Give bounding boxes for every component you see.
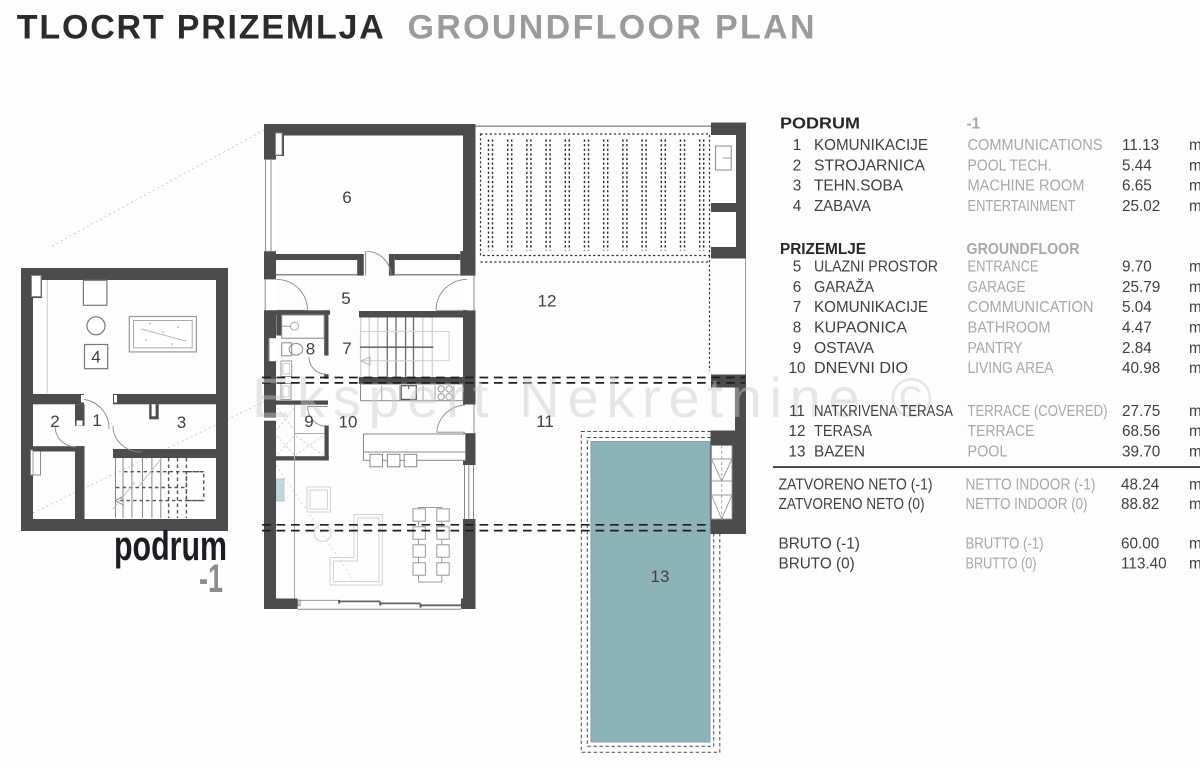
svg-text:NETTO INDOOR (0): NETTO INDOOR (0) xyxy=(966,496,1088,513)
svg-text:TERRACE: TERRACE xyxy=(968,423,1035,440)
svg-text:ZATVORENO NETO (0): ZATVORENO NETO (0) xyxy=(779,496,925,513)
svg-text:11: 11 xyxy=(536,412,554,431)
svg-text:m²: m² xyxy=(1189,555,1200,572)
svg-text:40.98: 40.98 xyxy=(1122,360,1160,377)
svg-text:12: 12 xyxy=(788,423,805,440)
svg-text:5: 5 xyxy=(793,259,802,276)
svg-text:m²: m² xyxy=(1189,536,1200,553)
svg-text:12: 12 xyxy=(538,292,557,311)
svg-text:m²: m² xyxy=(1189,423,1200,440)
svg-text:m²: m² xyxy=(1189,137,1200,154)
svg-text:13: 13 xyxy=(788,444,805,461)
svg-text:ZABAVA: ZABAVA xyxy=(814,198,872,215)
svg-text:25.79: 25.79 xyxy=(1122,279,1160,296)
svg-text:m²: m² xyxy=(1189,299,1200,316)
svg-text:KUPAONICA: KUPAONICA xyxy=(814,320,908,337)
svg-text:113.40: 113.40 xyxy=(1121,555,1167,572)
svg-text:m²: m² xyxy=(1189,198,1200,215)
svg-text:BRUTTO (0): BRUTTO (0) xyxy=(966,555,1037,572)
svg-text:m²: m² xyxy=(1189,157,1200,174)
svg-text:MACHINE ROOM: MACHINE ROOM xyxy=(968,178,1085,195)
svg-text:9: 9 xyxy=(793,340,802,357)
svg-text:m²: m² xyxy=(1189,496,1200,513)
svg-text:ZATVORENO NETO (-1): ZATVORENO NETO (-1) xyxy=(779,477,933,494)
svg-text:4: 4 xyxy=(793,198,802,215)
svg-text:TERRACE (COVERED): TERRACE (COVERED) xyxy=(968,403,1108,420)
svg-text:GROUNDFLOOR PLAN: GROUNDFLOOR PLAN xyxy=(408,9,815,47)
svg-text:KOMUNIKACIJE: KOMUNIKACIJE xyxy=(814,137,928,154)
svg-text:PRIZEMLJE: PRIZEMLJE xyxy=(780,241,866,258)
svg-text:TEHN.SOBA: TEHN.SOBA xyxy=(814,178,904,195)
svg-text:BRUTO (-1): BRUTO (-1) xyxy=(779,536,860,553)
svg-text:2: 2 xyxy=(793,157,802,174)
svg-text:COMMUNICATIONS: COMMUNICATIONS xyxy=(968,137,1103,154)
svg-text:TERASA: TERASA xyxy=(814,423,873,440)
svg-text:88.82: 88.82 xyxy=(1121,496,1159,513)
svg-text:6: 6 xyxy=(793,279,802,296)
svg-text:11.13: 11.13 xyxy=(1122,137,1159,154)
svg-text:PANTRY: PANTRY xyxy=(968,340,1023,357)
svg-text:STROJARNICA: STROJARNICA xyxy=(814,157,926,174)
svg-text:3: 3 xyxy=(793,178,802,195)
svg-text:13: 13 xyxy=(651,567,670,586)
svg-text:m²: m² xyxy=(1189,477,1200,494)
svg-text:10: 10 xyxy=(788,360,805,377)
svg-text:COMMUNICATION: COMMUNICATION xyxy=(968,299,1094,316)
svg-text:39.70: 39.70 xyxy=(1122,444,1160,461)
svg-text:9: 9 xyxy=(304,412,313,431)
svg-text:1: 1 xyxy=(92,411,101,430)
svg-text:ENTERTAINMENT: ENTERTAINMENT xyxy=(968,198,1076,215)
svg-text:5.04: 5.04 xyxy=(1122,299,1152,316)
svg-text:GARAGE: GARAGE xyxy=(968,279,1026,296)
svg-text:4: 4 xyxy=(91,348,100,367)
svg-text:6.65: 6.65 xyxy=(1122,178,1152,195)
svg-text:BRUTO (0): BRUTO (0) xyxy=(779,555,855,572)
svg-text:4.47: 4.47 xyxy=(1122,320,1152,337)
svg-text:10: 10 xyxy=(339,413,358,432)
svg-text:NATKRIVENA TERASA: NATKRIVENA TERASA xyxy=(814,403,954,420)
svg-text:1: 1 xyxy=(793,137,802,154)
svg-text:POOL: POOL xyxy=(968,444,1008,461)
svg-text:LIVING AREA: LIVING AREA xyxy=(968,360,1055,377)
svg-text:-1: -1 xyxy=(967,116,981,133)
svg-text:m²: m² xyxy=(1189,403,1200,420)
svg-text:KOMUNIKACIJE: KOMUNIKACIJE xyxy=(814,299,928,316)
svg-text:5.44: 5.44 xyxy=(1122,157,1152,174)
svg-text:2: 2 xyxy=(50,412,59,431)
svg-text:5: 5 xyxy=(341,289,350,308)
svg-text:BATHROOM: BATHROOM xyxy=(968,320,1051,337)
svg-text:6: 6 xyxy=(342,188,351,207)
svg-text:11: 11 xyxy=(789,403,805,420)
svg-text:m²: m² xyxy=(1189,444,1200,461)
svg-text:NETTO INDOOR (-1): NETTO INDOOR (-1) xyxy=(966,477,1096,494)
svg-text:PODRUM: PODRUM xyxy=(780,116,860,133)
svg-text:48.24: 48.24 xyxy=(1121,477,1160,494)
svg-text:BRUTTO (-1): BRUTTO (-1) xyxy=(966,536,1044,553)
svg-text:OSTAVA: OSTAVA xyxy=(814,340,875,357)
svg-text:m²: m² xyxy=(1189,178,1200,195)
svg-text:9.70: 9.70 xyxy=(1122,259,1152,276)
svg-text:GARAŽA: GARAŽA xyxy=(814,279,875,296)
svg-text:DNEVNI DIO: DNEVNI DIO xyxy=(814,360,908,377)
svg-text:8: 8 xyxy=(793,320,802,337)
svg-text:TLOCRT PRIZEMLJA: TLOCRT PRIZEMLJA xyxy=(17,9,384,47)
svg-text:27.75: 27.75 xyxy=(1122,403,1160,420)
svg-text:3: 3 xyxy=(177,413,186,432)
svg-text:ENTRANCE: ENTRANCE xyxy=(968,259,1039,276)
svg-text:m²: m² xyxy=(1189,340,1200,357)
svg-text:ULAZNI PROSTOR: ULAZNI PROSTOR xyxy=(814,259,938,276)
svg-text:-1: -1 xyxy=(199,557,223,601)
svg-text:7: 7 xyxy=(793,299,802,316)
svg-text:25.02: 25.02 xyxy=(1122,198,1160,215)
svg-text:m²: m² xyxy=(1189,259,1200,276)
svg-text:GROUNDFLOOR: GROUNDFLOOR xyxy=(967,241,1080,258)
svg-text:BAZEN: BAZEN xyxy=(814,444,865,461)
svg-text:68.56: 68.56 xyxy=(1122,423,1160,440)
svg-text:m²: m² xyxy=(1189,360,1200,377)
svg-text:8: 8 xyxy=(306,340,315,359)
svg-text:60.00: 60.00 xyxy=(1121,536,1159,553)
svg-text:7: 7 xyxy=(342,339,351,358)
svg-text:POOL TECH.: POOL TECH. xyxy=(968,157,1052,174)
svg-text:m²: m² xyxy=(1189,279,1200,296)
svg-text:m²: m² xyxy=(1189,320,1200,337)
svg-text:2.84: 2.84 xyxy=(1122,340,1152,357)
